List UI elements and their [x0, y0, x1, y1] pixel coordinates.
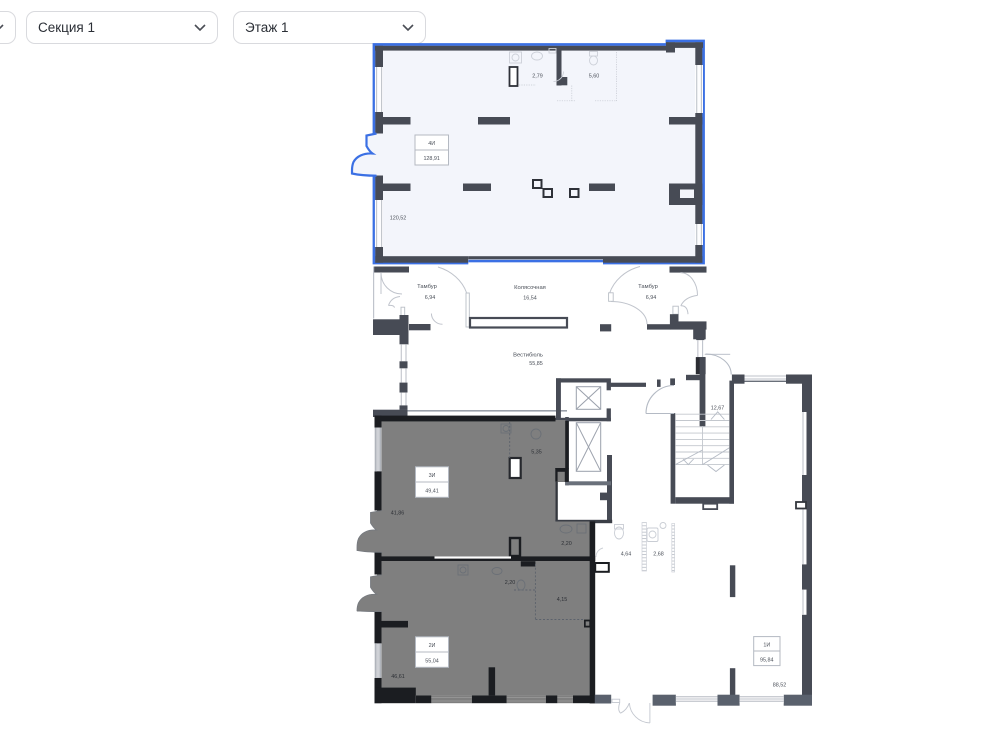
svg-text:2,20: 2,20 — [561, 541, 572, 547]
svg-text:2И: 2И — [429, 643, 436, 649]
svg-text:5,60: 5,60 — [589, 74, 600, 80]
svg-text:16,54: 16,54 — [523, 296, 537, 302]
svg-text:41,86: 41,86 — [391, 511, 405, 517]
svg-text:55,85: 55,85 — [529, 361, 543, 367]
svg-text:95,84: 95,84 — [760, 658, 774, 664]
svg-text:2,79: 2,79 — [532, 74, 543, 80]
svg-text:4,64: 4,64 — [621, 552, 632, 558]
svg-text:6,94: 6,94 — [646, 295, 657, 301]
svg-text:5,35: 5,35 — [531, 450, 542, 456]
svg-text:46,61: 46,61 — [391, 674, 405, 680]
svg-text:1И: 1И — [763, 643, 770, 649]
svg-text:12,67: 12,67 — [711, 406, 725, 412]
svg-text:Тамбур: Тамбур — [417, 284, 437, 290]
svg-text:Тамбур: Тамбур — [638, 284, 658, 290]
svg-text:3И: 3И — [429, 473, 436, 479]
svg-text:2,20: 2,20 — [505, 580, 516, 586]
svg-text:Вестибюль: Вестибюль — [513, 353, 543, 359]
svg-text:Колясочная: Колясочная — [514, 285, 546, 291]
svg-text:2,68: 2,68 — [653, 552, 664, 558]
svg-text:4,15: 4,15 — [557, 597, 568, 603]
svg-text:55,04: 55,04 — [425, 659, 439, 665]
svg-text:4И: 4И — [428, 141, 435, 147]
svg-text:128,91: 128,91 — [423, 156, 440, 162]
svg-text:6,94: 6,94 — [425, 295, 436, 301]
svg-text:49,41: 49,41 — [425, 489, 439, 495]
svg-text:88,52: 88,52 — [773, 683, 787, 689]
svg-text:120,52: 120,52 — [390, 216, 407, 222]
